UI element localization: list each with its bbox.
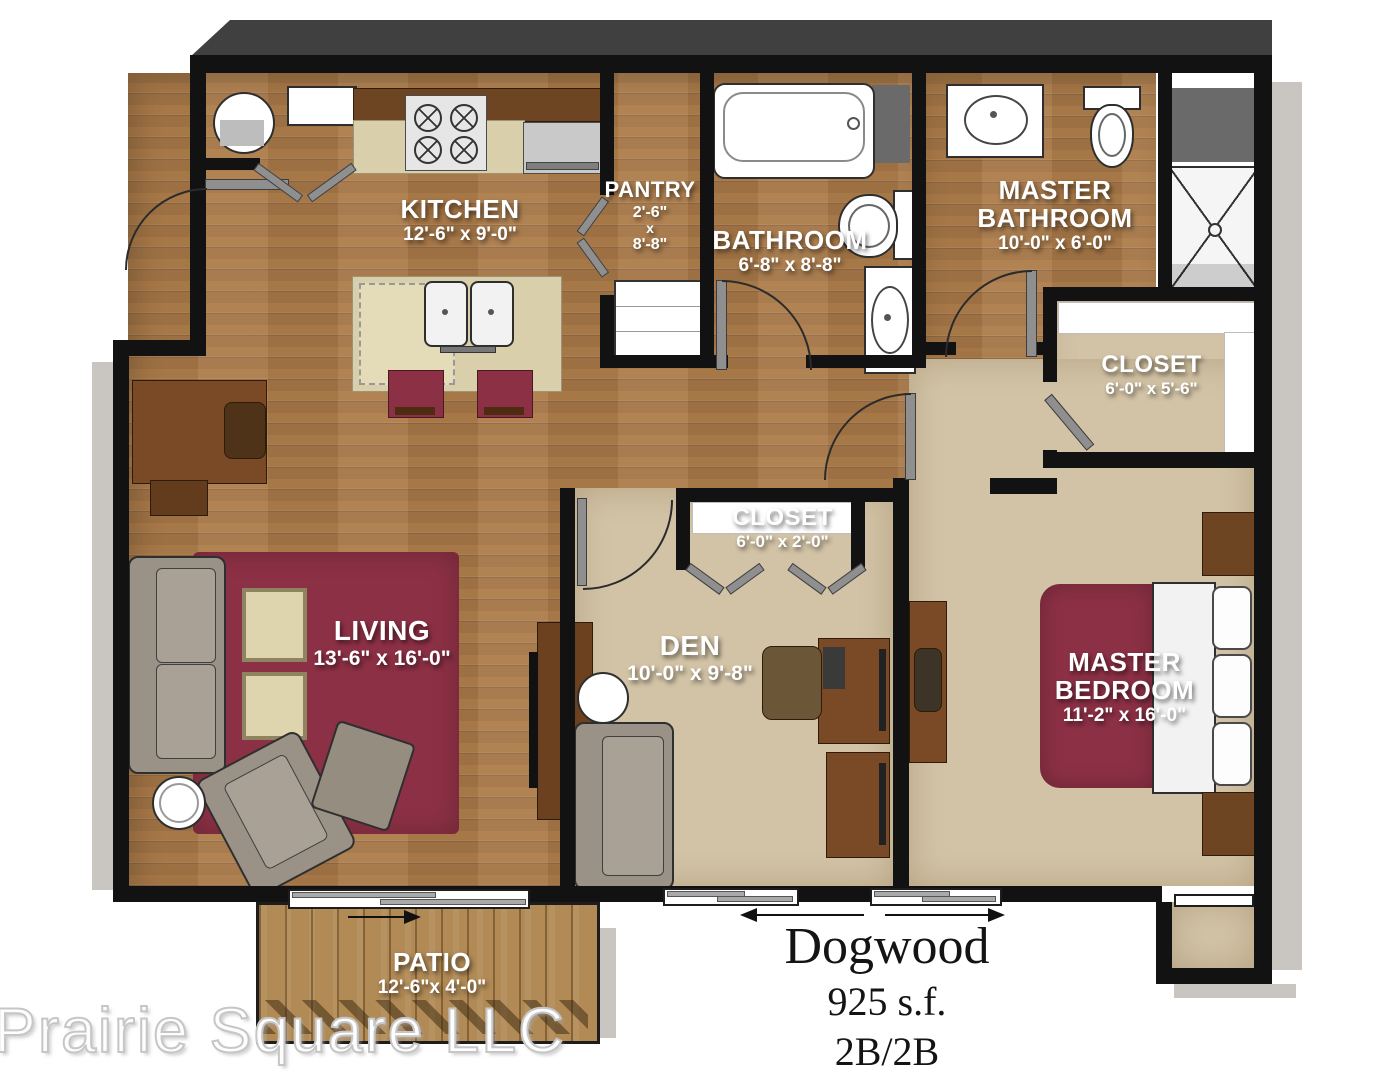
nightstand-icon bbox=[1202, 792, 1256, 856]
stove-burner bbox=[414, 104, 442, 132]
wall-den-left bbox=[560, 488, 575, 886]
plan-area: 925 s.f. bbox=[722, 979, 1052, 1025]
nightstand-icon bbox=[1202, 512, 1256, 576]
wall-shower-left bbox=[1158, 73, 1172, 299]
den-arrow-line bbox=[756, 914, 864, 916]
kitchen-sink-right-icon bbox=[470, 281, 514, 347]
wall-top bbox=[190, 55, 1272, 73]
label-kitchen: KITCHEN 12'-6" x 9'-0" bbox=[340, 195, 580, 246]
exterior-shadow-right bbox=[1272, 82, 1302, 970]
room-name: CLOSET bbox=[695, 505, 870, 531]
wall-den-top bbox=[676, 488, 907, 502]
wall-den-master-divider bbox=[893, 478, 909, 886]
sink-drain bbox=[488, 309, 494, 315]
slider-panel bbox=[380, 899, 526, 905]
label-master-closet: CLOSET 6'-0" x 5'-6" bbox=[1064, 352, 1239, 398]
room-name: DEN bbox=[600, 631, 780, 661]
pantry-shelves-icon bbox=[614, 280, 702, 359]
dishwasher-handle bbox=[526, 162, 599, 170]
room-name: MASTER BATHROOM bbox=[955, 176, 1155, 232]
label-master-bathroom: MASTER BATHROOM 10'-0" x 6'-0" bbox=[955, 176, 1155, 255]
room-name: LIVING bbox=[272, 616, 492, 646]
computer-tower-icon bbox=[823, 647, 845, 689]
label-den: DEN 10'-0" x 9'-8" bbox=[600, 631, 780, 686]
room-dims: 10'-0" x 9'-8" bbox=[600, 663, 780, 686]
closet-shelf-top-icon bbox=[1058, 302, 1256, 334]
room-dims: 6'-8" x 8'-8" bbox=[690, 256, 890, 277]
room-dims: 8'-8" bbox=[600, 236, 700, 253]
wall-closet-top bbox=[1043, 287, 1254, 301]
plan-config: 2B/2B bbox=[722, 1029, 1052, 1075]
armchair-cushion bbox=[223, 753, 330, 871]
wall-hall-bedroom bbox=[990, 478, 1057, 494]
room-dims: 13'-6" x 16'-0" bbox=[272, 648, 492, 671]
desk-return-icon bbox=[150, 480, 208, 516]
stove-icon bbox=[405, 95, 487, 171]
stool-base bbox=[484, 407, 524, 415]
room-dims: 6'-0" x 2'-0" bbox=[695, 533, 870, 551]
den-sliding-door bbox=[663, 888, 799, 906]
bifold-leaf bbox=[827, 563, 866, 595]
bath-sink-drain bbox=[884, 314, 891, 321]
exterior-shadow-left bbox=[92, 362, 113, 890]
den-desk-icon bbox=[818, 638, 890, 744]
slider-panel bbox=[717, 896, 793, 902]
label-den-closet: CLOSET 6'-0" x 2'-0" bbox=[695, 505, 870, 551]
wall-closet-left bbox=[1043, 301, 1057, 382]
room-name: PANTRY bbox=[600, 178, 700, 202]
alcove-window bbox=[1174, 894, 1254, 907]
bar-stool-icon bbox=[477, 370, 533, 418]
room-name: CLOSET bbox=[1064, 352, 1239, 378]
utility-shelf-icon bbox=[287, 86, 357, 126]
plan-title-block: Dogwood 925 s.f. 2B/2B bbox=[722, 918, 1052, 1075]
desk-chair-icon bbox=[224, 402, 266, 459]
loveseat-cushion bbox=[602, 736, 664, 876]
bifold-leaf bbox=[685, 563, 724, 595]
bathtub-basin bbox=[723, 92, 865, 162]
dishwasher-icon bbox=[523, 122, 604, 174]
stove-burner bbox=[450, 136, 478, 164]
slider-panel bbox=[922, 896, 996, 902]
label-bathroom: BATHROOM 6'-8" x 8'-8" bbox=[690, 226, 890, 277]
sofa-icon bbox=[128, 556, 226, 774]
master-sink-icon bbox=[964, 95, 1028, 145]
wall-pantry-bottom bbox=[600, 355, 714, 368]
wall-alcove-bottom bbox=[1156, 968, 1272, 984]
plumbing-chase-corner bbox=[1172, 88, 1256, 162]
room-name: PATIO bbox=[342, 948, 522, 976]
sink-drain bbox=[442, 309, 448, 315]
round-table-inner bbox=[159, 783, 199, 823]
bath-sink-icon bbox=[871, 286, 909, 354]
room-name: MASTER BEDROOM bbox=[1032, 648, 1217, 704]
plumbing-chase-bath bbox=[872, 85, 910, 163]
wall-den-closet-left bbox=[676, 488, 690, 570]
stove-burner bbox=[414, 136, 442, 164]
water-heater-shade bbox=[220, 120, 264, 146]
bifold-leaf bbox=[253, 163, 303, 203]
sofa-cushion bbox=[156, 664, 216, 759]
tv-icon bbox=[529, 652, 538, 788]
label-master-bedroom: MASTER BEDROOM 11'-2" x 16'-0" bbox=[1032, 648, 1217, 727]
stool-base bbox=[395, 407, 435, 415]
den-desk2-icon bbox=[826, 752, 890, 858]
round-table-icon bbox=[152, 776, 206, 830]
label-pantry: PANTRY 2'-6" x 8'-8" bbox=[600, 178, 700, 253]
top-wall-bevel bbox=[168, 20, 1272, 57]
bifold-leaf bbox=[725, 563, 764, 595]
shower-icon bbox=[1168, 166, 1260, 292]
plan-name: Dogwood bbox=[722, 918, 1052, 975]
bathtub-drain bbox=[847, 117, 860, 130]
slider-panel bbox=[292, 892, 436, 898]
label-living: LIVING 13'-6" x 16'-0" bbox=[272, 616, 492, 671]
monitor-icon bbox=[879, 649, 886, 731]
master-sliding-door bbox=[870, 888, 1002, 906]
patio-sliding-door bbox=[288, 889, 530, 909]
den-closet-bifold-left bbox=[688, 562, 762, 600]
exterior-shadow-alcove bbox=[1174, 984, 1296, 998]
bathtub-icon bbox=[713, 83, 875, 179]
floor-carpet-alcove bbox=[1172, 902, 1254, 968]
room-dims: 2'-6" bbox=[600, 204, 700, 221]
bedroom-chair-icon bbox=[914, 648, 942, 712]
room-dims: 6'-0" x 5'-6" bbox=[1064, 380, 1239, 398]
monitor-icon bbox=[879, 763, 886, 845]
master-toilet-bowl-inner bbox=[1098, 113, 1126, 157]
side-table-icon bbox=[242, 672, 307, 740]
den-closet-bifold-right bbox=[790, 562, 864, 600]
label-patio: PATIO 12'-6"x 4'-0" bbox=[342, 948, 522, 999]
room-name: KITCHEN bbox=[340, 195, 580, 223]
master-vanity-icon bbox=[946, 84, 1044, 158]
wall-closet-bottom bbox=[1043, 452, 1254, 468]
pillow-icon bbox=[1212, 722, 1252, 786]
wall-pantry-bath-divider bbox=[700, 73, 714, 368]
stove-burner bbox=[450, 104, 478, 132]
wall-bath-bottom-right bbox=[806, 355, 926, 368]
room-dims: 12'-6" x 9'-0" bbox=[340, 225, 580, 246]
shower-drain bbox=[1208, 223, 1222, 237]
wall-bath-right bbox=[912, 73, 926, 368]
bar-stool-icon bbox=[388, 370, 444, 418]
room-name: BATHROOM bbox=[690, 226, 890, 254]
room-dims: 10'-0" x 6'-0" bbox=[955, 234, 1155, 255]
master-toilet-bowl-icon bbox=[1090, 104, 1134, 168]
watermark: Prairie Square LLC bbox=[0, 995, 566, 1067]
bifold-leaf bbox=[787, 563, 826, 595]
patio-arrow-line bbox=[348, 916, 404, 918]
sink-faucet-icon bbox=[440, 346, 496, 353]
kitchen-sink-left-icon bbox=[424, 281, 468, 347]
pillow-icon bbox=[1212, 654, 1252, 718]
sofa-cushion bbox=[156, 568, 216, 663]
wall-right bbox=[1254, 55, 1272, 984]
patio-arrow-icon bbox=[404, 910, 421, 924]
wall-left-lower bbox=[113, 340, 129, 902]
pillow-icon bbox=[1212, 586, 1252, 650]
room-dims: 11'-2" x 16'-0" bbox=[1032, 706, 1217, 727]
floor-plan: KITCHEN 12'-6" x 9'-0" PANTRY 2'-6" x 8'… bbox=[0, 0, 1398, 1080]
wall-utility-closet bbox=[203, 158, 260, 170]
bed-pillows bbox=[1212, 584, 1254, 788]
master-arrow-line bbox=[885, 914, 989, 916]
room-dims: x bbox=[600, 221, 700, 236]
master-sink-drain bbox=[990, 111, 997, 118]
loveseat-icon bbox=[574, 722, 674, 890]
